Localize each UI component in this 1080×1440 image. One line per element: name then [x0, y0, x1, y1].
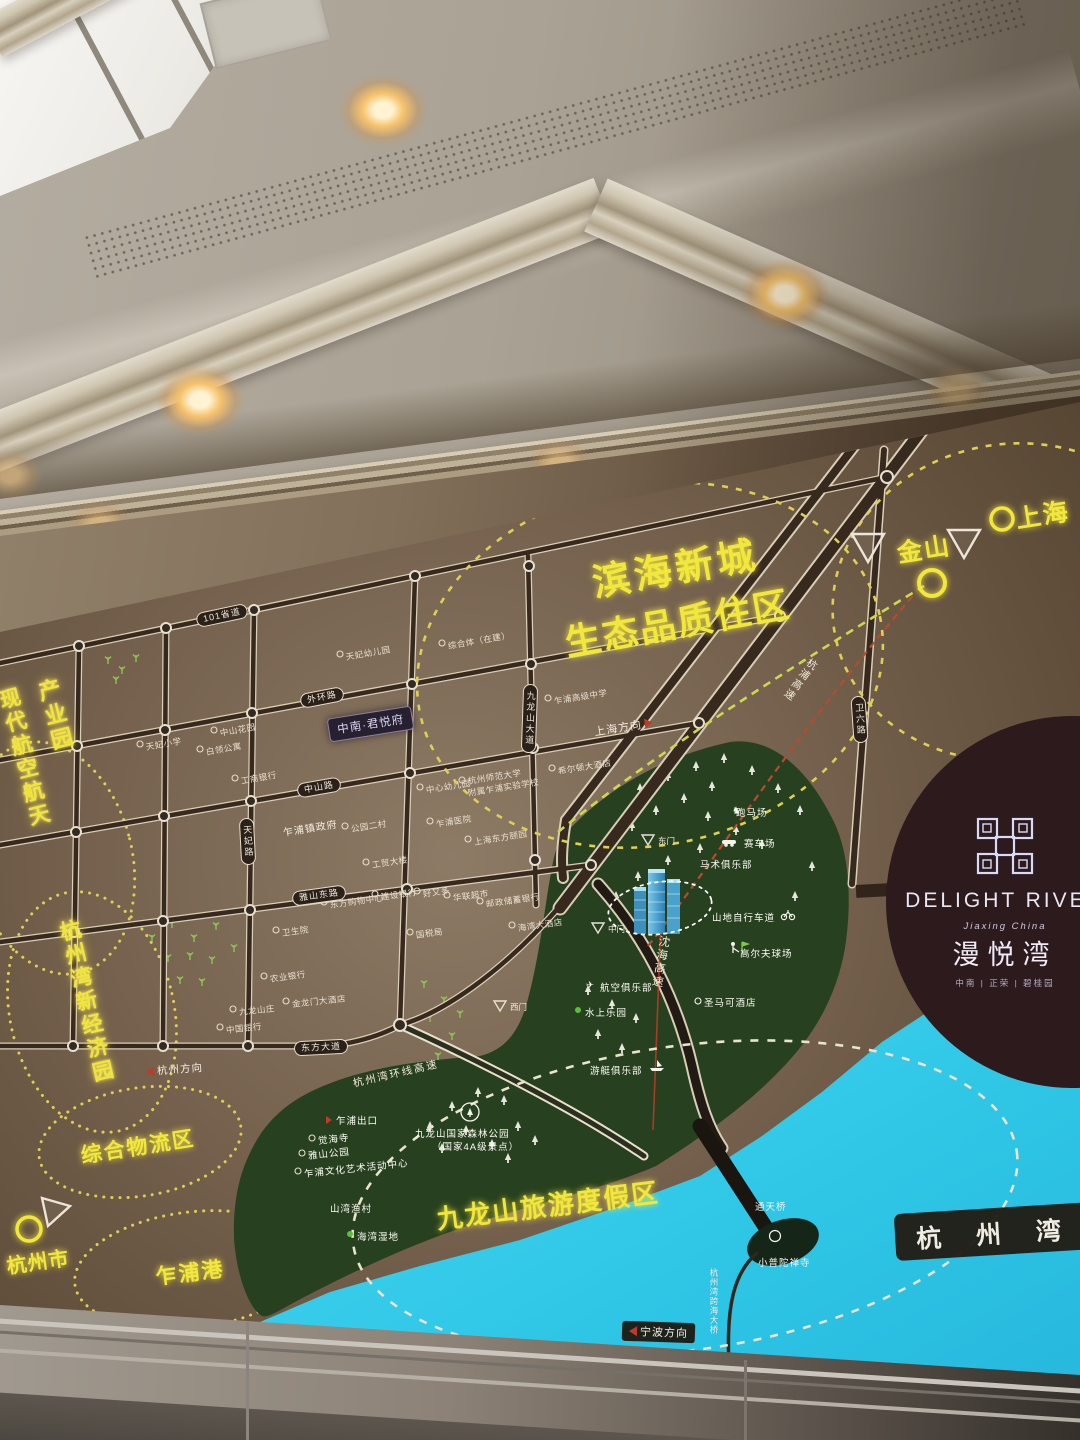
- svg-text:（国家4A级景点）: （国家4A级景点）: [432, 1141, 519, 1153]
- lower-panel: [0, 1392, 1080, 1440]
- svg-text:西门: 西门: [510, 1002, 527, 1012]
- svg-text:游艇俱乐部: 游艇俱乐部: [590, 1065, 643, 1077]
- svg-text:海湾湿地: 海湾湿地: [357, 1231, 399, 1243]
- road-label-jiulongshan-ave: 九龙山大道: [521, 684, 538, 753]
- panel-seam: [744, 1360, 747, 1440]
- waterpark-dot: [575, 1007, 581, 1013]
- wetland-dot: [347, 1231, 353, 1237]
- road-label-weiliu: 卫六路: [850, 696, 868, 744]
- svg-text:山地自行车道: 山地自行车道: [712, 912, 775, 924]
- svg-text:马术俱乐部: 马术俱乐部: [700, 859, 753, 871]
- bridge-label: 通天桥: [755, 1201, 787, 1213]
- svg-text:中南 | 正荣 | 碧桂园: 中南 | 正荣 | 碧桂园: [955, 978, 1054, 988]
- road-label-tianfei: 天妃路: [239, 818, 256, 866]
- red-arrow-icon: [146, 1066, 155, 1077]
- road-label-dongfang: 东方大道: [294, 1039, 349, 1057]
- svg-text:高尔夫球场: 高尔夫球场: [740, 948, 793, 960]
- red-arrow-icon: [644, 717, 653, 728]
- svg-text:山湾渔村: 山湾渔村: [330, 1203, 372, 1215]
- svg-text:圣马可酒店: 圣马可酒店: [704, 997, 757, 1009]
- svg-text:航空俱乐部: 航空俱乐部: [600, 982, 653, 994]
- plane-icon: ✈: [586, 980, 595, 991]
- temple-label: 小普陀禅寺: [758, 1257, 811, 1269]
- showroom-photo: 综合体（在建） 天妃幼儿园 中山花园 天妃小学 白领公寓 工商银行 乍浦高级中学…: [0, 0, 1080, 1440]
- red-arrow-icon: [629, 1326, 637, 1336]
- panel-seam: [246, 1322, 249, 1440]
- svg-text:赛车场: 赛车场: [744, 838, 776, 850]
- svg-text:跑马场: 跑马场: [736, 807, 768, 819]
- svg-text:Jiaxing China: Jiaxing China: [962, 921, 1046, 932]
- svg-text:东门: 东门: [658, 836, 675, 846]
- direction-ningbo: 宁波方向: [622, 1321, 696, 1344]
- svg-text:漫悦湾: 漫悦湾: [953, 940, 1058, 970]
- svg-text:水上乐园: 水上乐园: [585, 1007, 627, 1019]
- svg-text:DELIGHT RIVER: DELIGHT RIVER: [905, 889, 1080, 912]
- svg-text:九龙山国家森林公园: 九龙山国家森林公园: [415, 1128, 510, 1140]
- svg-text:乍浦出口: 乍浦出口: [336, 1115, 378, 1127]
- road-label-cross-sea-bridge: 杭州湾跨海大桥: [708, 1268, 720, 1335]
